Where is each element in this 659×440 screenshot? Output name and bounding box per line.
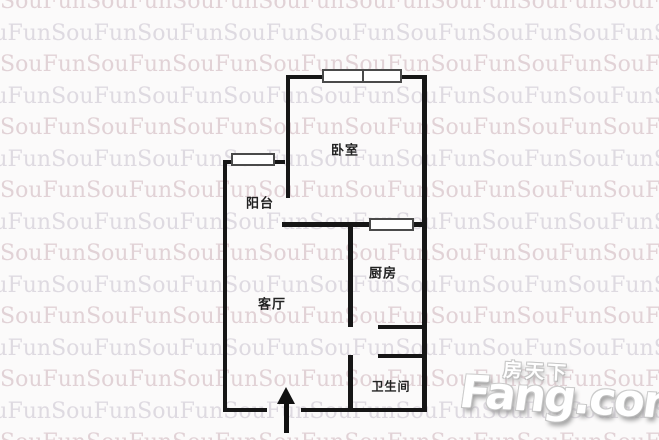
wall-exterior-left (223, 160, 227, 412)
room-label-kitchen: 厨房 (369, 263, 397, 282)
floorplan-image: SouFunSouFunSouFunSouFunSouFunSouFunSouF… (0, 0, 659, 440)
wall-exterior-right (422, 75, 427, 412)
wall-bathroom-top-lower (378, 354, 427, 358)
window-bedroom (322, 69, 402, 83)
room-label-living-room: 客厅 (258, 294, 286, 313)
window-kitchen (369, 218, 414, 231)
wall-bedroom-left (286, 75, 290, 198)
entrance-arrow-shaft (284, 403, 289, 433)
wall-kitchen-left-upper (348, 225, 353, 327)
window-balcony (231, 153, 275, 166)
entrance-arrow-icon (277, 387, 295, 404)
wall-kitchen-left-lower (348, 355, 353, 411)
wall-bottom-left (223, 408, 267, 412)
room-label-bedroom: 卧室 (331, 140, 359, 159)
floorplan: 卧室 阳台 厨房 客厅 卫生间 (0, 0, 659, 440)
wall-bathroom-top-upper (378, 325, 427, 329)
window-mullion (362, 71, 364, 81)
room-label-balcony: 阳台 (246, 193, 274, 212)
wall-bottom-right (301, 408, 427, 412)
room-label-bathroom: 卫生间 (371, 378, 410, 395)
